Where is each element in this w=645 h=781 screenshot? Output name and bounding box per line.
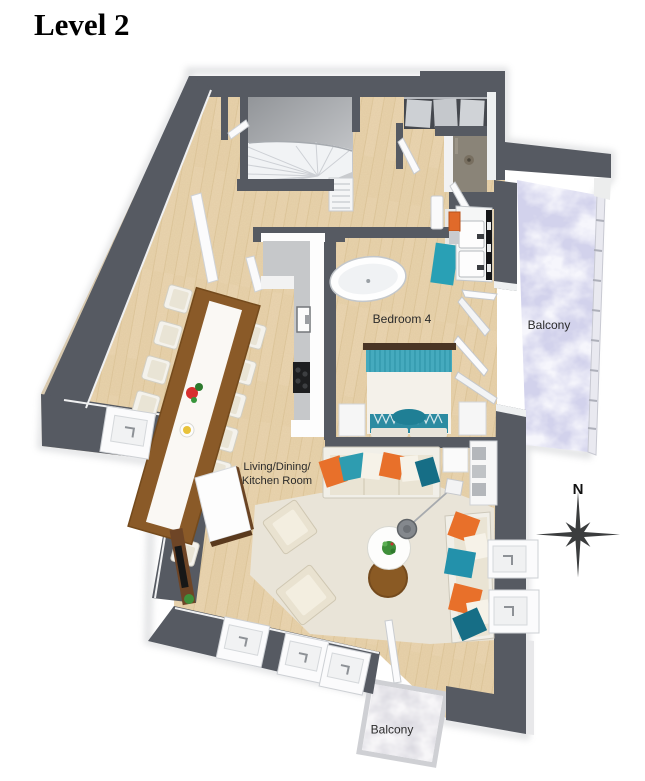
svg-text:Balcony: Balcony — [371, 723, 414, 737]
svg-text:Balcony: Balcony — [528, 318, 571, 332]
svg-text:Living/Dining/: Living/Dining/ — [243, 461, 311, 473]
svg-text:Kitchen Room: Kitchen Room — [242, 475, 312, 487]
svg-text:Level 2: Level 2 — [34, 7, 130, 42]
svg-text:Bedroom 4: Bedroom 4 — [373, 312, 432, 326]
